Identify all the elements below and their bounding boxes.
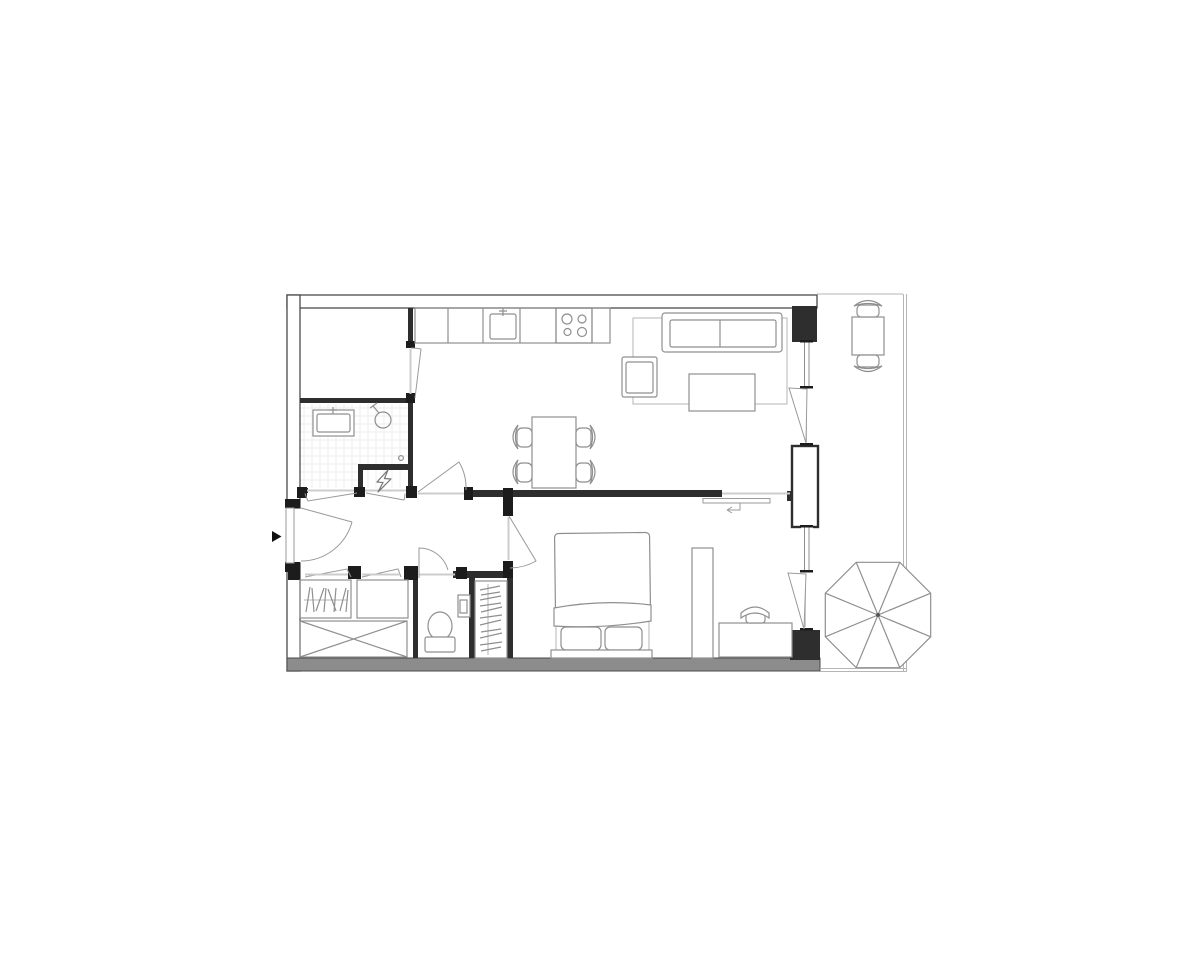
duvet-fold: [554, 603, 651, 627]
hall-closet-flap-door: [362, 569, 401, 577]
bathroom-right-wall: [408, 403, 413, 488]
storage-door: [411, 348, 421, 398]
top-wall: [287, 295, 817, 308]
parasol-pole: [876, 613, 880, 617]
coffee-table: [689, 374, 755, 411]
kitchen: [415, 308, 610, 343]
electrical-closet-top-wall: [358, 464, 410, 470]
hanging-rail-closet: [475, 581, 507, 658]
dining-chair: [576, 425, 595, 449]
pillow: [561, 627, 601, 650]
hall-top-wall-right: [472, 490, 505, 497]
wardrobe-column: [692, 548, 713, 658]
dining-set: [513, 417, 595, 488]
balcony-chair: [854, 355, 882, 372]
living-bedroom-partition: [505, 490, 722, 497]
entrance-door-slab: [286, 508, 294, 563]
double-bed: [551, 532, 652, 658]
dining-chair: [513, 425, 532, 449]
window-bedroom: [801, 527, 813, 572]
right-pier-middle: [792, 446, 818, 527]
armchair: [622, 357, 657, 397]
wc-washbasin: [458, 595, 470, 617]
door-jambs: [285, 341, 513, 580]
bedroom: [475, 532, 792, 658]
cooktop-icon: [556, 308, 592, 343]
storage-right-wall: [408, 308, 413, 346]
parasol: [825, 562, 930, 667]
window-living: [801, 342, 813, 388]
wc-right-wall: [469, 578, 475, 658]
storage-bathroom-divider: [300, 398, 410, 403]
dining-chair: [513, 460, 532, 484]
kitchen-counter: [415, 308, 610, 343]
floor-plan-page: [0, 0, 1200, 977]
floor-plan-drawing: [0, 0, 1200, 977]
closet-box: [357, 580, 408, 618]
right-pier-bottom: [790, 630, 820, 660]
toilet: [425, 612, 455, 652]
left-wall-upper: [287, 295, 300, 508]
pillow: [605, 627, 642, 650]
bistro-table: [852, 317, 884, 355]
balcony-chair: [854, 301, 882, 318]
bottom-wall: [287, 658, 820, 671]
desk-chair: [741, 607, 769, 623]
bedroom-left-wall: [507, 571, 513, 658]
right-pier-top: [792, 306, 817, 342]
kitchen-tap: [499, 308, 507, 316]
living-room: [622, 313, 787, 411]
entrance-door-swing: [301, 522, 352, 561]
balcony-bottom-edge: [820, 669, 907, 672]
crossed-shaft-box: [300, 621, 407, 657]
desk: [719, 623, 792, 657]
interior-walls: [300, 308, 722, 658]
living-balcony-door-leaf: [789, 388, 807, 443]
bathroom-door-leaf: [305, 493, 357, 501]
kitchen-sink: [490, 314, 516, 339]
wc: [425, 595, 470, 652]
dining-chair: [576, 460, 595, 484]
balcony: [817, 294, 931, 672]
entrance-door-leaf: [301, 508, 352, 522]
hall-kitchen-door: [418, 462, 466, 492]
electrical-closet-door-leaf: [366, 493, 405, 500]
hall-storage: [300, 580, 408, 657]
bed-base: [551, 650, 652, 658]
hanging-rail-wardrobe: [300, 580, 351, 618]
sliding-door-panel: [703, 499, 770, 504]
sliding-door-arrow: [727, 503, 740, 513]
bedroom-balcony-door-leaf: [788, 573, 806, 629]
bedroom-door: [509, 516, 536, 568]
dining-table: [532, 417, 576, 488]
wc-left-wall: [413, 578, 418, 658]
sofa: [662, 313, 782, 352]
hall-wardrobe-flap-door: [305, 569, 351, 577]
entrance-arrow-icon: [272, 531, 282, 542]
washbasin: [313, 407, 354, 436]
